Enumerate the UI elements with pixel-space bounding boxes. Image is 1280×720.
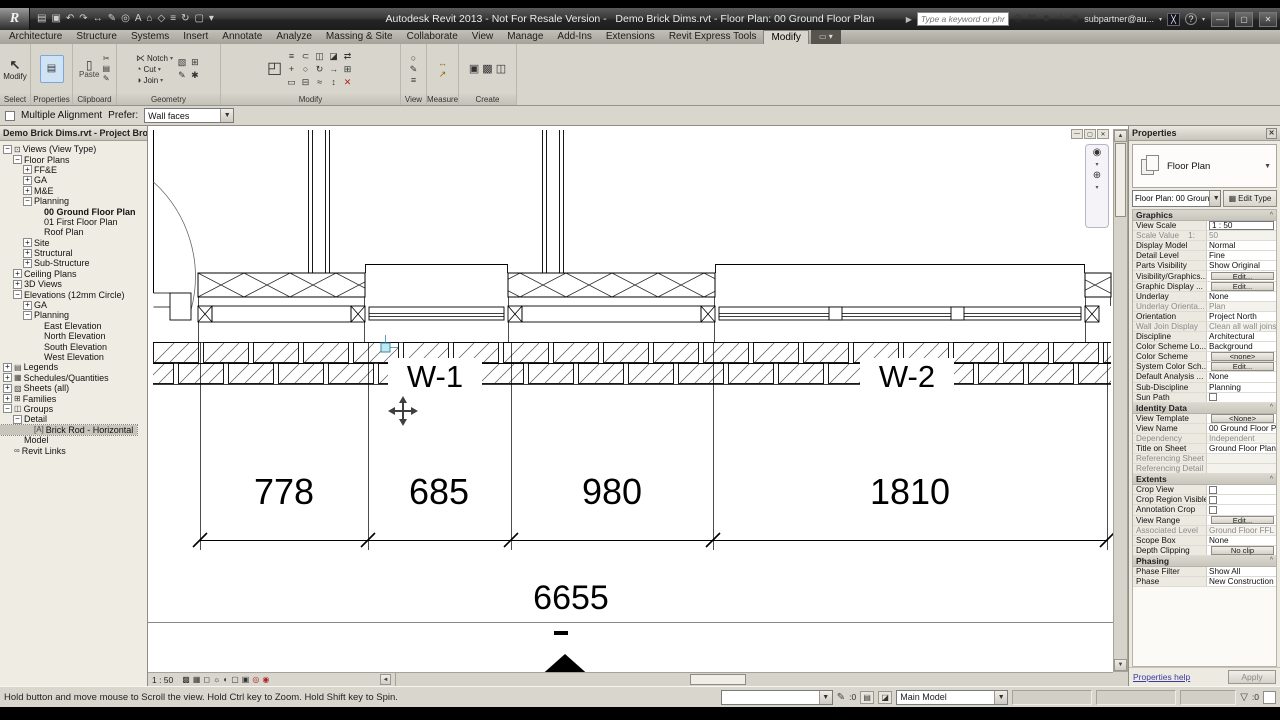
properties-title[interactable]: Properties ✕ [1129, 126, 1280, 141]
dimension-text[interactable]: 685 [409, 471, 469, 512]
chevron-down-icon[interactable]: ▾ [170, 55, 173, 62]
scroll-left-icon[interactable]: ◄ [380, 674, 391, 685]
section-marker-triangle[interactable] [538, 654, 592, 672]
tree-item-views-view-type[interactable]: −⊡Views (View Type) [0, 144, 96, 154]
properties-toggle-button[interactable]: ▤ [40, 55, 64, 83]
brick-rod-horizontal-icon: [A] [34, 425, 44, 434]
instance-select[interactable]: Floor Plan: 00 Groun ▼ [1132, 190, 1221, 207]
property-value[interactable]: Show All [1207, 567, 1276, 576]
tree-item-east-elevation[interactable]: East Elevation [0, 321, 102, 331]
demolish-icon[interactable]: ✎ [176, 70, 188, 82]
wall-inner-leaf[interactable] [508, 273, 715, 297]
paint-icon[interactable]: ✱ [189, 70, 201, 82]
property-value[interactable] [1207, 393, 1276, 402]
property-value[interactable]: Planning [1207, 383, 1276, 392]
expander-expand-icon[interactable]: + [3, 384, 12, 393]
property-value[interactable]: Fine [1207, 251, 1276, 260]
beam-join-icon[interactable]: ⊞ [189, 57, 201, 69]
mirror-pick-axis-icon[interactable]: ◫ [313, 50, 326, 62]
copy-icon[interactable]: ○ [299, 63, 312, 75]
panel-label-clipboard[interactable]: Clipboard [73, 94, 116, 105]
property-row-phase-filter: Phase FilterShow All [1133, 567, 1276, 577]
expander-expand-icon[interactable]: + [13, 280, 22, 289]
annotation-crop-checkbox[interactable] [1209, 506, 1217, 514]
tree-item-south-elevation[interactable]: South Elevation [0, 341, 107, 351]
chevron-down-icon[interactable]: ▼ [994, 691, 1007, 704]
delete-icon[interactable]: ✕ [341, 76, 354, 88]
aligned-dimension-icon[interactable]: ↔ [93, 14, 103, 24]
legends-icon: ▤ [14, 363, 22, 372]
project-browser-title[interactable]: Demo Brick Dims.rvt - Project Bro... ✕ [0, 126, 147, 141]
unpin-icon[interactable]: ≈ [313, 76, 326, 88]
offset-icon[interactable]: ⊂ [299, 50, 312, 62]
properties-help-link[interactable]: Properties help [1133, 672, 1190, 682]
chevron-down-icon[interactable]: ▾ [160, 77, 163, 84]
tree-item-roof-plan[interactable]: Roof Plan [0, 227, 84, 237]
property-row-sun-path: Sun Path [1133, 393, 1276, 403]
collapse-chevron-icon[interactable]: ^ [1270, 476, 1273, 483]
tree-item-label: Sheets (all) [24, 383, 70, 393]
thin-lines-icon[interactable]: ≡ [170, 14, 176, 24]
tree-item-brick-rod-horizontal[interactable]: [A]Brick Rod - Horizontal [0, 425, 137, 435]
property-value[interactable]: Edit... [1207, 282, 1276, 291]
brick-course-2[interactable] [153, 363, 1111, 384]
collapse-chevron-icon[interactable]: ^ [1270, 212, 1273, 219]
level-marker-dash [554, 631, 568, 635]
search-binoculars-icon[interactable]: ◎ [1014, 14, 1023, 24]
zoom-tool-icon[interactable]: ⊕ [1093, 171, 1101, 181]
scale-icon[interactable]: ▭ [285, 76, 298, 88]
crop-view-checkbox[interactable] [1209, 486, 1217, 494]
properties-palette: Properties ✕ Floor Plan ▼ Floor Plan: 00… [1128, 126, 1280, 686]
tree-item-ceiling-plans[interactable]: +Ceiling Plans [0, 269, 77, 279]
tab-view[interactable]: View [465, 30, 501, 44]
chevron-down-icon[interactable]: ▼ [1209, 191, 1221, 206]
create-similar-icon[interactable]: ◫ [496, 64, 506, 75]
panel-label-properties[interactable]: Properties [31, 94, 72, 105]
help-button[interactable]: ? [1185, 13, 1197, 25]
tree-item-label: Ceiling Plans [24, 269, 77, 279]
section-header-graphics[interactable]: Graphics^ [1133, 210, 1276, 221]
redo-icon[interactable]: ↷ [79, 14, 87, 24]
tab-extensions[interactable]: Extensions [599, 30, 662, 44]
apply-button[interactable]: Apply [1228, 670, 1276, 684]
edit-button[interactable]: Edit... [1211, 516, 1274, 525]
collapse-chevron-icon[interactable]: ^ [1270, 557, 1273, 564]
expander-expand-icon[interactable]: + [23, 249, 32, 258]
status-bar: Hold button and move mouse to Scroll the… [0, 686, 1280, 707]
expander-collapse-icon[interactable]: − [3, 145, 12, 154]
filter-icon[interactable]: ▽ [1240, 692, 1248, 703]
panel-label-geometry[interactable]: Geometry [117, 94, 220, 105]
crop-region-visible-checkbox[interactable] [1209, 496, 1217, 504]
tree-item-label: South Elevation [44, 342, 107, 352]
tree-item-north-elevation[interactable]: North Elevation [0, 331, 106, 341]
detail-group-icon[interactable]: ▩ [482, 64, 492, 75]
property-value[interactable]: Ground Floor Plan [1207, 444, 1276, 453]
array-icon[interactable]: ⊞ [341, 63, 354, 75]
tree-item-label: North Elevation [44, 331, 106, 341]
type-name: Floor Plan [1167, 161, 1210, 172]
exchange-apps-icon[interactable]: ╳ [1167, 13, 1180, 26]
close-icon[interactable]: ✕ [1266, 128, 1277, 139]
move-icon[interactable]: + [285, 63, 298, 75]
tree-item-ga[interactable]: +GA [0, 175, 47, 185]
account-menu[interactable]: subpartner@au... [1084, 14, 1154, 24]
dimension-text[interactable]: 778 [254, 471, 314, 512]
property-value[interactable]: Background [1207, 342, 1276, 351]
property-value[interactable]: Edit... [1207, 271, 1276, 280]
tree-item-detail[interactable]: −Detail [0, 414, 47, 424]
expander-collapse-icon[interactable]: − [13, 155, 22, 164]
tree-item-ff-e[interactable]: +FF&E [0, 165, 57, 175]
design-option-select[interactable]: ▼ [721, 690, 833, 705]
tree-item-elevations-12mm-circle[interactable]: −Elevations (12mm Circle) [0, 289, 125, 299]
cavity [522, 306, 701, 322]
edit-type-icon: ▦ [1229, 195, 1237, 203]
customize-qat-icon[interactable]: ▾ [209, 14, 214, 24]
wall-tag-w1[interactable]: W-1 [407, 359, 463, 394]
property-value[interactable]: Architectural [1207, 332, 1276, 341]
tree-item-revit-links[interactable]: ∞Revit Links [0, 445, 66, 455]
property-row-view-scale: View Scale1 : 50 [1133, 221, 1276, 231]
property-value: Independent [1207, 434, 1276, 443]
cut-geometry-button[interactable]: ◔Cut▾ [136, 65, 173, 74]
text-icon[interactable]: A [135, 14, 142, 24]
edit-type-label: Edit Type [1238, 194, 1271, 203]
tab-modify[interactable]: Modify [763, 30, 808, 44]
sun-path-checkbox[interactable] [1209, 393, 1217, 401]
edit-button[interactable]: Edit... [1211, 272, 1274, 281]
modify-tool-label[interactable]: Modify [3, 72, 27, 81]
tab-collaborate[interactable]: Collaborate [400, 30, 465, 44]
property-label: View Template [1133, 414, 1207, 423]
ribbon: ↖ Modify Select ▤ Properties ▯ Paste ✂▤✎… [0, 44, 1280, 106]
property-value[interactable]: None [1207, 292, 1276, 301]
vertical-scroll-thumb[interactable] [1115, 143, 1126, 217]
tree-item-sub-structure[interactable]: +Sub-Structure [0, 258, 90, 268]
synchronize-icon[interactable]: ↻ [181, 14, 189, 24]
tree-item-site[interactable]: +Site [0, 238, 50, 248]
tree-item-label: Brick Rod - Horizontal [46, 425, 134, 435]
scale-bar-icon[interactable]: ▩ [182, 676, 190, 684]
favorites-icon[interactable]: ☆ [1057, 14, 1066, 24]
zoom-icon[interactable]: ◎ [121, 14, 130, 24]
expander-expand-icon[interactable]: + [23, 176, 32, 185]
property-label: Parts Visibility [1133, 261, 1207, 270]
wall-inner-leaf[interactable] [1085, 273, 1111, 297]
design-options-icon[interactable]: ◪ [878, 691, 892, 704]
property-value[interactable]: Project North [1207, 312, 1276, 321]
tab-architecture[interactable]: Architecture [2, 30, 69, 44]
tag-icon[interactable]: ✎ [108, 14, 116, 24]
multiple-alignment-checkbox[interactable] [5, 111, 15, 121]
drawing-canvas[interactable]: 778 685 980 1810 6655 W-1 W-2 [148, 130, 1114, 672]
property-label: Referencing Detail [1133, 464, 1207, 473]
vertical-scrollbar[interactable]: ▲ ▼ [1113, 129, 1128, 672]
total-dimension-text[interactable]: 6655 [533, 579, 609, 617]
tree-item-label: 00 Ground Floor Plan [44, 207, 136, 217]
expander-expand-icon[interactable]: + [23, 301, 32, 310]
open-icon[interactable]: ▤ [37, 14, 46, 24]
tree-item-west-elevation[interactable]: West Elevation [0, 352, 104, 362]
horizontal-scrollbar[interactable] [396, 672, 1113, 686]
help-caret-icon[interactable]: ▾ [1202, 16, 1205, 23]
section-header-extents[interactable]: Extents^ [1133, 474, 1276, 485]
none-button[interactable]: <None> [1211, 414, 1274, 423]
chevron-down-icon[interactable]: ▼ [220, 109, 233, 122]
view-restore-icon[interactable]: ▢ [1084, 129, 1096, 139]
pin-icon[interactable]: ⊟ [299, 76, 312, 88]
tree-item-3d-views[interactable]: +3D Views [0, 279, 62, 289]
expander-expand-icon[interactable]: + [23, 165, 32, 174]
wall-joins-icon[interactable]: ◰ [267, 61, 282, 77]
view-scale-field[interactable]: 1 : 50 [1209, 221, 1274, 230]
expander-collapse-icon[interactable]: − [23, 197, 32, 206]
notch-button[interactable]: ⋉Notch▾ [136, 54, 173, 63]
instance-value: Floor Plan: 00 Groun [1135, 194, 1209, 203]
property-value[interactable]: Edit... [1207, 362, 1276, 371]
property-label: View Range [1133, 516, 1207, 525]
expander-collapse-icon[interactable]: − [13, 290, 22, 299]
tree-item-m-e[interactable]: +M&E [0, 186, 54, 196]
partition-wall [309, 130, 330, 273]
panel-label-create[interactable]: Create [459, 94, 516, 105]
section-header-identity-data[interactable]: Identity Data^ [1133, 403, 1276, 414]
paste-icon: ▯ [86, 59, 93, 71]
property-value[interactable]: Edit... [1207, 516, 1276, 525]
tab-add-ins[interactable]: Add-Ins [550, 30, 598, 44]
tree-spacer [33, 353, 42, 362]
property-row-view-template: View Template<None> [1133, 414, 1276, 424]
property-value[interactable]: 1 : 50 [1207, 221, 1276, 230]
close-hidden-windows-icon[interactable]: ▢ [194, 14, 203, 24]
close-button[interactable]: ✕ [1259, 12, 1277, 27]
communication-center-icon[interactable]: ☻ [1041, 14, 1052, 24]
view-scale-button[interactable]: 1 : 50 [152, 675, 173, 685]
window-w2-frame [719, 307, 1081, 320]
tree-item-00-ground-floor-plan[interactable]: 00 Ground Floor Plan [0, 206, 136, 216]
property-value[interactable]: None [1207, 536, 1276, 545]
sun-path-icon[interactable]: ☼ [213, 676, 220, 684]
tree-item-sheets-all[interactable]: +▧Sheets (all) [0, 383, 69, 393]
prefer-select[interactable]: Wall faces ▼ [144, 108, 234, 123]
panel-label-modify[interactable]: Modify [221, 94, 400, 105]
property-row-orientation: OrientationProject North [1133, 312, 1276, 322]
chevron-down-icon[interactable]: ▼ [1264, 163, 1274, 170]
tab-annotate[interactable]: Annotate [215, 30, 269, 44]
visual-style-icon[interactable]: ◻ [203, 676, 210, 684]
geometry-tools: ⋉Notch▾◔Cut▾◑Join▾ [136, 54, 173, 85]
sign-in-icon[interactable]: ◉ [1071, 14, 1080, 24]
property-value[interactable]: <None> [1207, 414, 1276, 423]
property-value[interactable]: <none> [1207, 352, 1276, 361]
subscription-icon[interactable]: ✉ [1028, 14, 1036, 24]
shadows-icon[interactable]: ◐ [223, 676, 228, 684]
dimension-text[interactable]: 980 [582, 471, 642, 512]
tree-item-planning[interactable]: −Planning [0, 310, 69, 320]
no-clip-button[interactable]: No clip [1211, 546, 1274, 555]
tree-item-floor-plans[interactable]: −Floor Plans [0, 154, 70, 164]
property-row-system-color-sch: System Color Sch...Edit... [1133, 362, 1276, 372]
reveal-hidden-elements-icon[interactable]: ◉ [262, 676, 269, 684]
type-selector[interactable]: Floor Plan ▼ [1132, 144, 1277, 188]
panel-display-toggle-icon[interactable]: ▭ ▾ [811, 30, 841, 44]
chevron-down-icon[interactable]: ▼ [819, 691, 832, 704]
expander-expand-icon[interactable]: + [23, 238, 32, 247]
collapse-chevron-icon[interactable]: ^ [1270, 404, 1273, 411]
tree-item-families[interactable]: +⊞Families [0, 393, 56, 403]
paste-label: Paste [79, 71, 99, 80]
tree-item-label: Floor Plans [24, 155, 70, 165]
tree-item-planning[interactable]: −Planning [0, 196, 69, 206]
revit-links-icon: ∞ [14, 446, 20, 455]
door-threshold [170, 293, 191, 320]
tab-insert[interactable]: Insert [176, 30, 215, 44]
active-workset-select[interactable]: Main Model ▼ [896, 690, 1008, 705]
property-value[interactable]: Show Original [1207, 261, 1276, 270]
join-geometry-button[interactable]: ◑Join▾ [136, 76, 173, 85]
account-caret-icon[interactable]: ▾ [1159, 16, 1162, 23]
notch-label: Notch [147, 54, 168, 63]
measure-between-refs-icon[interactable]: ↔ [438, 59, 447, 68]
modify-big-tools: ◰ [267, 60, 282, 78]
align-icon[interactable]: ≡ [285, 50, 298, 62]
restore-button[interactable]: ▢ [1235, 12, 1253, 27]
minimize-button[interactable]: — [1211, 12, 1229, 27]
property-value[interactable] [1207, 485, 1276, 494]
sketchy-lines-icon[interactable]: ✎ [410, 65, 418, 74]
property-value[interactable]: 00 Ground Floor Plan [1207, 424, 1276, 433]
brick-course-1[interactable] [153, 342, 1111, 363]
property-label: Color Scheme Lo... [1133, 342, 1207, 351]
expander-expand-icon[interactable]: + [13, 269, 22, 278]
tab-manage[interactable]: Manage [500, 30, 550, 44]
tab-systems[interactable]: Systems [124, 30, 176, 44]
property-row-wall-join-display: Wall Join DisplayClean all wall joins [1133, 322, 1276, 332]
legend-component-icon[interactable]: ▣ [469, 64, 479, 75]
paste-button[interactable]: ▯ Paste [79, 59, 99, 80]
options-bar: Multiple Alignment Prefer: Wall faces ▼ [0, 106, 1280, 126]
scroll-up-icon[interactable]: ▲ [1114, 130, 1127, 142]
steering-wheel-icon[interactable]: ◉ [1093, 148, 1102, 158]
expander-expand-icon[interactable]: + [23, 186, 32, 195]
tab-massing-site[interactable]: Massing & Site [319, 30, 400, 44]
trim-extend-icon[interactable]: → [327, 63, 340, 75]
property-label: Visibility/Graphics... [1133, 271, 1207, 280]
split-with-gap-icon[interactable]: ⇄ [341, 50, 354, 62]
window-w1-frame [369, 307, 504, 320]
edit-button[interactable]: Edit... [1211, 362, 1274, 371]
mirror-draw-axis-icon[interactable]: ◪ [327, 50, 340, 62]
save-icon[interactable]: ▣ [51, 14, 60, 24]
split-element-icon[interactable]: ↕ [327, 76, 340, 88]
tree-item-structural[interactable]: +Structural [0, 248, 73, 258]
tree-item-ga[interactable]: +GA [0, 300, 47, 310]
edit-type-button[interactable]: ▦ Edit Type [1223, 190, 1277, 207]
tab-revit-express-tools[interactable]: Revit Express Tools [662, 30, 764, 44]
tree-item-model[interactable]: Model [0, 435, 49, 445]
panel-label-measure[interactable]: Measure [427, 94, 458, 105]
expander-collapse-icon[interactable]: − [3, 404, 12, 413]
view-close-icon[interactable]: ✕ [1097, 129, 1109, 139]
dimension-text[interactable]: 1810 [870, 471, 950, 512]
expander-expand-icon[interactable]: + [3, 373, 12, 382]
chevron-down-icon[interactable]: ▾ [1095, 161, 1098, 168]
match-type-icon[interactable]: ✎ [102, 75, 110, 83]
panel-label-select[interactable]: Select [0, 94, 30, 105]
none-button[interactable]: <none> [1211, 352, 1274, 361]
horizontal-scroll-thumb[interactable] [690, 674, 746, 685]
edit-button[interactable]: Edit... [1211, 282, 1274, 291]
join-geometry-label: Join [143, 76, 158, 85]
property-value[interactable]: None [1207, 372, 1276, 381]
property-value[interactable] [1207, 505, 1276, 514]
prefer-label: Prefer: [108, 110, 138, 121]
tree-item-schedules-quantities[interactable]: +▦Schedules/Quantities [0, 373, 109, 383]
undo-icon[interactable]: ↶ [66, 14, 74, 24]
editable-only-icon[interactable]: ✎ [837, 692, 845, 703]
expander-expand-icon[interactable]: + [3, 363, 12, 372]
cut-clipboard-icon[interactable]: ✂ [102, 55, 110, 63]
temporary-hide-isolate-icon[interactable]: ◎ [252, 676, 259, 684]
view-minimize-icon[interactable]: — [1071, 129, 1083, 139]
expander-collapse-icon[interactable]: − [13, 415, 22, 424]
detail-level-icon[interactable]: ▦ [193, 676, 201, 684]
tab-analyze[interactable]: Analyze [269, 30, 319, 44]
scroll-down-icon[interactable]: ▼ [1114, 659, 1127, 671]
selection-toggle[interactable] [1263, 691, 1276, 704]
rotate-icon[interactable]: ↻ [313, 63, 326, 75]
property-value[interactable]: Normal [1207, 241, 1276, 250]
tree-item-01-first-floor-plan[interactable]: 01 First Floor Plan [0, 217, 118, 227]
tree-item-label: Groups [24, 404, 54, 414]
default-3d-view-icon[interactable]: ⌂ [146, 14, 152, 24]
help-search-input[interactable] [917, 12, 1009, 26]
worksets-icon[interactable]: ▤ [860, 691, 874, 704]
wall-inner-leaf[interactable] [198, 273, 365, 297]
section-icon[interactable]: ◇ [158, 14, 166, 24]
render-icon[interactable]: ○ [410, 54, 418, 63]
tree-item-groups[interactable]: −◫Groups [0, 404, 53, 414]
property-row-annotation-crop: Annotation Crop [1133, 505, 1276, 515]
panel-label-view[interactable]: View [401, 94, 426, 105]
copy-clipboard-icon[interactable]: ▤ [102, 65, 110, 73]
ribbon-panel-measure: ↔↗ Measure [427, 44, 459, 105]
ribbon-panel-create: ▣▩◫ Create [459, 44, 517, 105]
thin-lines-toggle-icon[interactable]: ≡ [410, 76, 418, 85]
tree-item-legends[interactable]: +▤Legends [0, 362, 58, 372]
chevron-down-icon[interactable]: ▾ [1095, 184, 1098, 191]
expander-expand-icon[interactable]: + [23, 259, 32, 268]
property-row-graphic-display: Graphic Display ...Edit... [1133, 282, 1276, 292]
show-crop-region-icon[interactable]: ▣ [242, 676, 250, 684]
expander-expand-icon[interactable]: + [3, 394, 12, 403]
wall-tag-w2[interactable]: W-2 [879, 359, 935, 394]
application-menu-button[interactable]: R [0, 8, 30, 30]
crop-view-icon[interactable]: ▢ [231, 676, 239, 684]
property-value[interactable]: New Construction [1207, 577, 1276, 586]
modify-cursor-icon[interactable]: ↖ [10, 58, 21, 71]
tab-structure[interactable]: Structure [69, 30, 124, 44]
section-header-phasing[interactable]: Phasing^ [1133, 556, 1276, 567]
chevron-down-icon[interactable]: ▾ [158, 66, 161, 73]
wall-layers-icon[interactable]: ▧ [176, 57, 188, 69]
measure-along-element-icon[interactable]: ↗ [438, 70, 447, 79]
expander-collapse-icon[interactable]: − [23, 311, 32, 320]
property-value[interactable] [1207, 495, 1276, 504]
property-value[interactable]: No clip [1207, 546, 1276, 555]
